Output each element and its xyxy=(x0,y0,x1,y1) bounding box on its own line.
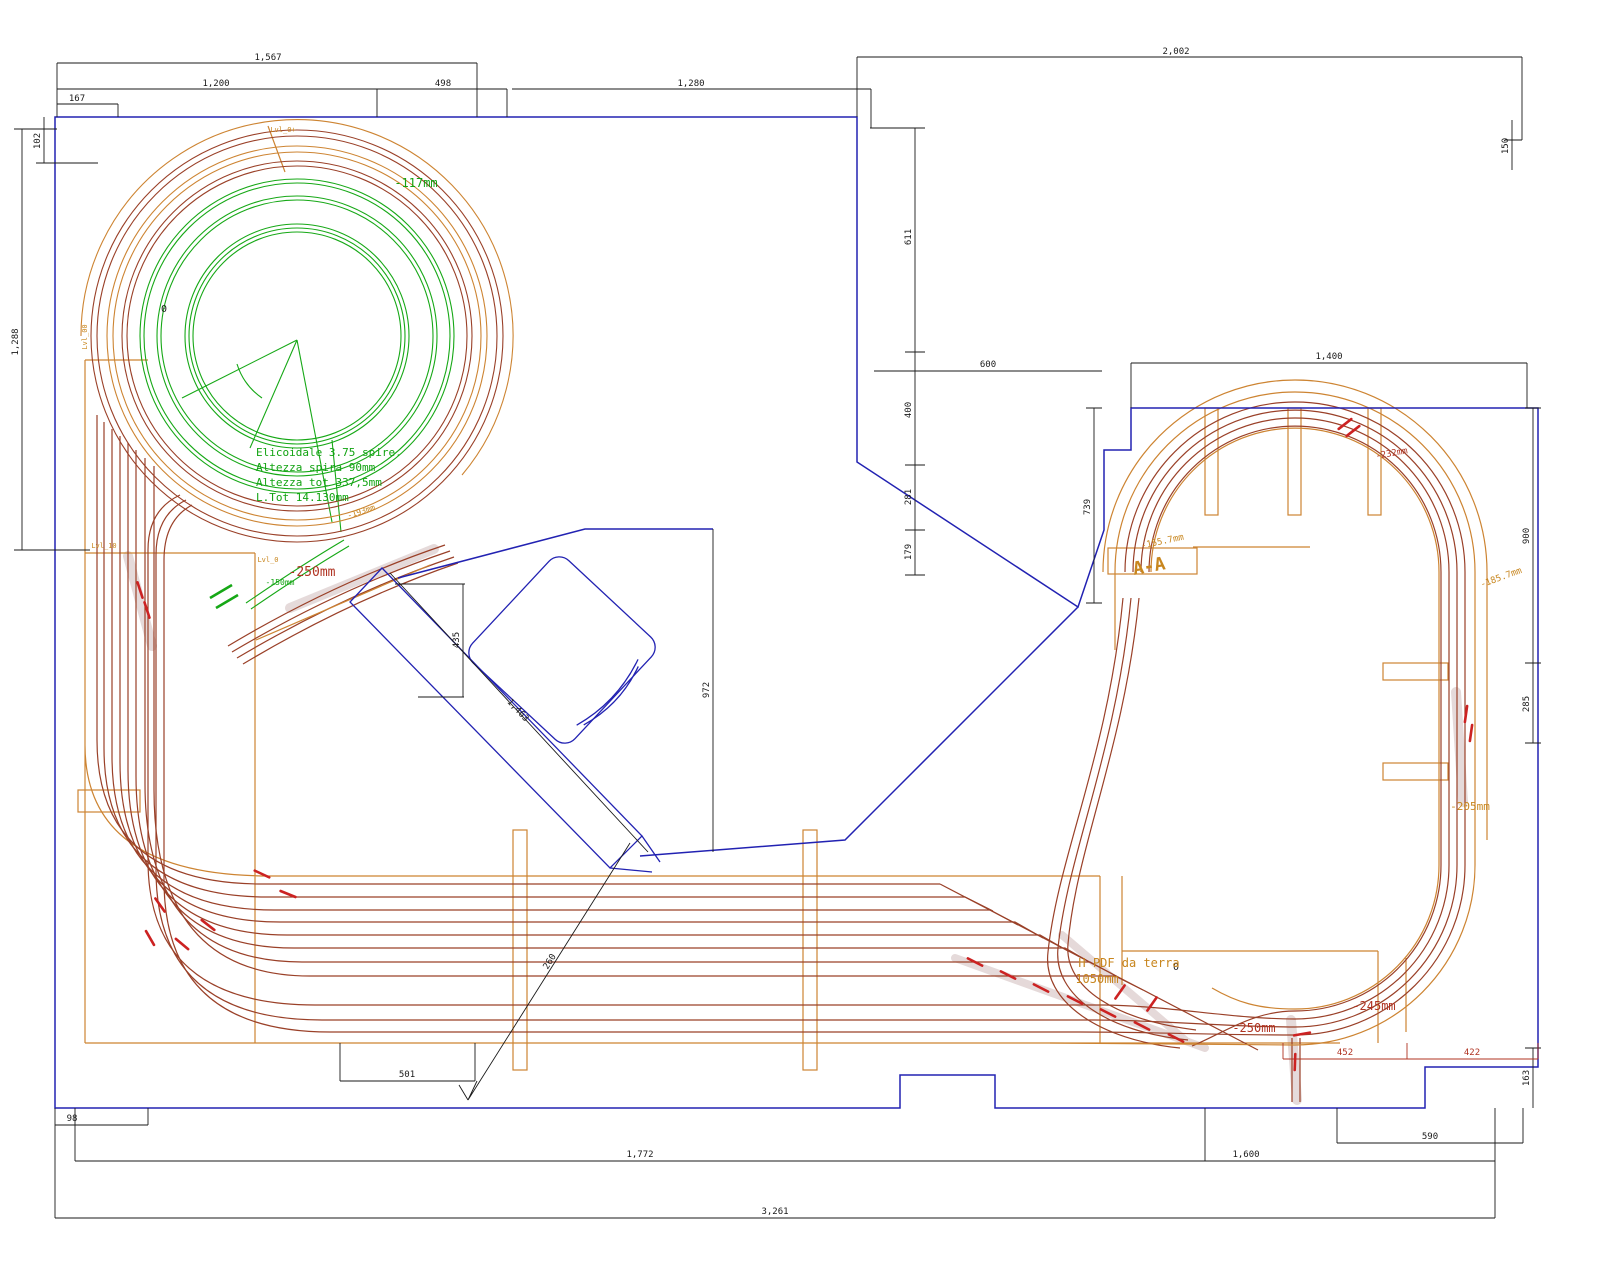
dim-label: 150 xyxy=(1501,138,1511,154)
elevation-label: -250mm xyxy=(1232,1021,1275,1035)
dim-label: 422 xyxy=(1464,1048,1480,1058)
helix-note-line: L.Tot 14.130mm xyxy=(256,491,349,504)
level-tag: Lvl_0+ xyxy=(270,126,295,134)
helix-note-line: Altezza tot 337,5mm xyxy=(256,476,382,489)
track-plan-svg: 1,5671,2004981,2801672,00215061140028117… xyxy=(0,0,1600,1280)
elevation-label: -193mm xyxy=(346,503,376,521)
drawing-labels: 1,5671,2004981,2801672,00215061140028117… xyxy=(11,47,1532,1217)
dim-label: 1,200 xyxy=(202,79,229,89)
dim-label: 3,261 xyxy=(761,1207,788,1217)
dim-label: 452 xyxy=(1337,1048,1353,1058)
dim-label: 1,280 xyxy=(677,79,704,89)
dim-label: 435 xyxy=(452,632,462,648)
dim-label: 281 xyxy=(904,489,914,505)
dim-label: 1,400 xyxy=(1315,352,1342,362)
elevation-label: -155.7mm xyxy=(1140,533,1184,552)
turnout-mark xyxy=(155,898,164,911)
dim-label: 285 xyxy=(1522,696,1532,712)
dim-label: 167 xyxy=(69,94,85,104)
dim-label: 163 xyxy=(1522,1070,1532,1086)
dim-label: 900 xyxy=(1522,528,1532,544)
dim-label: 1,772 xyxy=(626,1150,653,1160)
dim-label: 1,463 xyxy=(505,697,531,724)
cad-drawing-viewport[interactable]: 1,5671,2004981,2801672,00215061140028117… xyxy=(0,0,1600,1280)
turnout-mark xyxy=(281,891,296,897)
level-tag: Lvl_00 xyxy=(81,324,89,349)
room-outline xyxy=(55,117,1538,1108)
dim-label: 1,600 xyxy=(1232,1150,1259,1160)
dimension-lines-red xyxy=(1283,1043,1538,1059)
dim-label: 739 xyxy=(1083,499,1093,515)
helix-note-line: Altezza spira 90mm xyxy=(256,461,376,474)
helix xyxy=(81,120,513,609)
benchwork-lines xyxy=(78,126,1448,1070)
switch-marks xyxy=(138,419,1473,1070)
elevation-label: -245mm xyxy=(1352,999,1395,1013)
level-tag: Lvl_0 xyxy=(257,556,278,564)
section-label: A-A xyxy=(1131,553,1167,579)
height-note: 1050mm xyxy=(1075,972,1118,986)
furniture-shapes xyxy=(350,551,663,872)
dim-label: 98 xyxy=(67,1114,78,1124)
dim-label: 498 xyxy=(435,79,451,89)
elevation-label: -185.7mm xyxy=(1479,566,1523,590)
dim-label: 2,002 xyxy=(1162,47,1189,57)
dim-label: 600 xyxy=(980,360,996,370)
dim-label: 1,567 xyxy=(254,53,281,63)
elevation-label: -205mm xyxy=(1450,800,1490,813)
dim-label: 501 xyxy=(399,1070,415,1080)
dim-label: 590 xyxy=(1422,1132,1438,1142)
dim-label: 972 xyxy=(702,682,712,698)
dim-label: 611 xyxy=(904,229,914,245)
turnout-mark xyxy=(1295,1054,1296,1070)
turnout-mark xyxy=(146,931,154,945)
level-tag: Lvl_10 xyxy=(91,542,116,550)
track-lines-orange xyxy=(256,380,1487,1045)
elevation-label: -117mm xyxy=(394,176,437,190)
dim-label: 400 xyxy=(904,402,914,418)
dim-label: 102 xyxy=(33,133,43,149)
dim-label: 179 xyxy=(904,544,914,560)
turnout-mark xyxy=(176,939,188,949)
dim-label: 1,288 xyxy=(11,328,21,355)
turnout-mark xyxy=(1470,725,1472,741)
elevation-label: -250mm xyxy=(289,565,336,580)
origin-marker: 0 xyxy=(161,304,167,315)
height-note: H PDF da terra xyxy=(1078,956,1179,970)
track-lines-darkred xyxy=(97,402,1465,1102)
helix-note-line: Elicoidale 3.75 spire. xyxy=(256,446,402,459)
elevation-label: -232mm xyxy=(1375,446,1409,461)
